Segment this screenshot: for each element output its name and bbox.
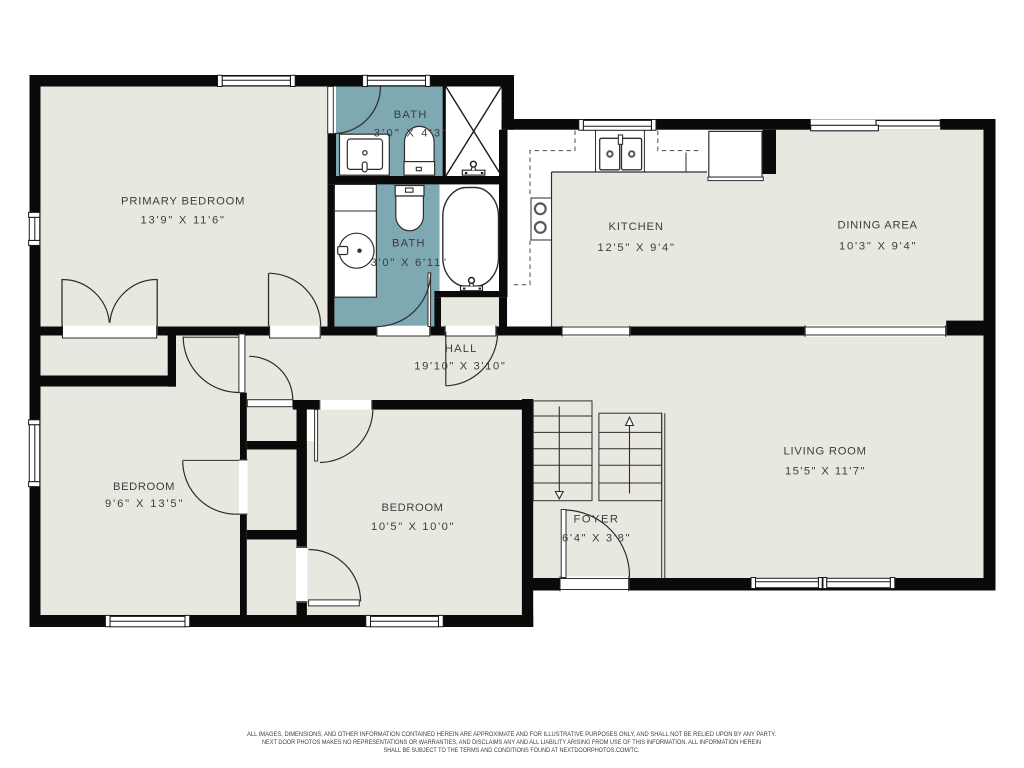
- svg-text:15'5" X 11'7": 15'5" X 11'7": [785, 466, 865, 478]
- svg-text:19'10" X 3'10": 19'10" X 3'10": [414, 360, 505, 372]
- svg-text:6'4" X 3'8": 6'4" X 3'8": [562, 533, 630, 545]
- svg-text:BEDROOM: BEDROOM: [382, 502, 444, 514]
- svg-text:12'5" X 9'4": 12'5" X 9'4": [598, 242, 675, 254]
- svg-text:BEDROOM: BEDROOM: [113, 481, 175, 493]
- svg-text:HALL: HALL: [445, 343, 477, 355]
- svg-text:3'0" X 4'3": 3'0" X 4'3": [374, 127, 447, 139]
- svg-text:ALL IMAGES, DIMENSIONS, AND OT: ALL IMAGES, DIMENSIONS, AND OTHER INFORM…: [247, 731, 776, 738]
- svg-text:BATH: BATH: [392, 238, 425, 250]
- svg-text:13'9" X 11'6": 13'9" X 11'6": [141, 215, 225, 227]
- svg-text:10'3" X 9'4": 10'3" X 9'4": [839, 241, 916, 253]
- svg-text:DINING AREA: DINING AREA: [838, 220, 918, 232]
- svg-text:BATH: BATH: [394, 109, 427, 121]
- svg-text:NEXT DOOR PHOTOS MAKES NO REPR: NEXT DOOR PHOTOS MAKES NO REPRESENTATION…: [262, 739, 761, 746]
- svg-text:KITCHEN: KITCHEN: [609, 221, 664, 233]
- svg-text:10'5" X 10'0": 10'5" X 10'0": [371, 521, 454, 533]
- svg-text:SHALL BE SUBJECT TO THE TERMS: SHALL BE SUBJECT TO THE TERMS AND CONDIT…: [384, 747, 640, 754]
- svg-text:FOYER: FOYER: [574, 514, 619, 526]
- svg-text:LIVING ROOM: LIVING ROOM: [784, 446, 867, 458]
- svg-text:PRIMARY BEDROOM: PRIMARY BEDROOM: [121, 196, 245, 208]
- svg-text:3'0" X 6'11": 3'0" X 6'11": [371, 257, 447, 269]
